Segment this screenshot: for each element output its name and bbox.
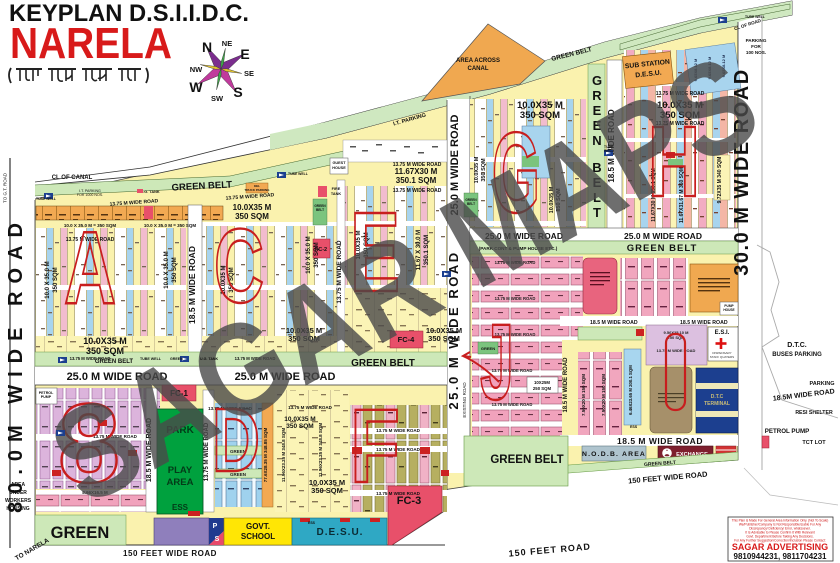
- svg-text:E: E: [240, 46, 249, 62]
- svg-text:FC-3: FC-3: [397, 495, 421, 507]
- svg-text:350 SQM: 350 SQM: [172, 257, 178, 282]
- svg-text:FOR 1000 NOS.: FOR 1000 NOS.: [77, 193, 103, 197]
- svg-text:CL OF CANAL: CL OF CANAL: [52, 175, 93, 181]
- svg-text:RESI SHELTER: RESI SHELTER: [795, 410, 833, 416]
- svg-text:U.G. TANK: U.G. TANK: [200, 357, 219, 361]
- svg-text:13.75 M WIDE ROAD: 13.75 M WIDE ROAD: [393, 162, 442, 168]
- svg-text:10.0 X 35.0 M: 10.0 X 35.0 M: [164, 251, 170, 288]
- svg-text:TRUCK PARKING: TRUCK PARKING: [245, 188, 271, 192]
- svg-text:10.0 X 35.0 M: 10.0 X 35.0 M: [45, 261, 51, 298]
- svg-text:GREEN BELT: GREEN BELT: [490, 454, 563, 466]
- svg-text:FIRE: FIRE: [332, 187, 341, 191]
- svg-text:11.96X23.25 M 348.8 SQM: 11.96X23.25 M 348.8 SQM: [318, 423, 323, 478]
- svg-text:NARELA: NARELA: [10, 19, 172, 68]
- svg-text:UNDER: UNDER: [9, 490, 27, 496]
- svg-text:18.5 M WIDE ROAD: 18.5 M WIDE ROAD: [563, 357, 569, 413]
- svg-text:EXISTING ROAD: EXISTING ROAD: [462, 382, 467, 418]
- svg-text:HOUSE: HOUSE: [723, 308, 734, 312]
- svg-text:7.50X20 M 150 SQM: 7.50X20 M 150 SQM: [601, 374, 606, 416]
- svg-text:13.75 M WIDE ROAD: 13.75 M WIDE ROAD: [657, 348, 696, 353]
- svg-text:250 SQM: 250 SQM: [533, 386, 552, 391]
- svg-text:ESS: ESS: [308, 521, 316, 525]
- svg-text:S: S: [233, 84, 242, 100]
- svg-text:HOUSE: HOUSE: [332, 166, 346, 170]
- svg-text:AREA: AREA: [11, 482, 26, 488]
- svg-text:S: S: [215, 536, 220, 543]
- svg-text:FOR: FOR: [751, 44, 761, 49]
- svg-text:TUBE WELL: TUBE WELL: [36, 197, 56, 201]
- svg-text:6.46X23.65 M 200.1 SQM: 6.46X23.65 M 200.1 SQM: [628, 365, 633, 415]
- svg-text:SAGAR ADVERTISING: SAGAR ADVERTISING: [732, 542, 828, 552]
- svg-text:150 FEET WIDE ROAD: 150 FEET WIDE ROAD: [123, 549, 217, 558]
- svg-text:NE: NE: [222, 39, 232, 48]
- svg-text:TUBE WELL: TUBE WELL: [288, 172, 308, 176]
- svg-text:P: P: [213, 523, 218, 530]
- svg-text:GREEN BELT: GREEN BELT: [627, 243, 698, 254]
- svg-text:N.O.D.B. AREA: N.O.D.B. AREA: [582, 451, 646, 458]
- svg-text:A: A: [64, 210, 116, 325]
- svg-text:SCHOOL: SCHOOL: [241, 532, 275, 541]
- svg-text:STAFF QUATERS: STAFF QUATERS: [710, 355, 734, 359]
- svg-text:TCT LOT: TCT LOT: [802, 440, 826, 446]
- svg-text:PETROL PUMP: PETROL PUMP: [765, 428, 810, 435]
- svg-text:WELL: WELL: [604, 149, 614, 153]
- svg-text:N: N: [202, 39, 212, 55]
- svg-text:350 SQM: 350 SQM: [53, 267, 59, 292]
- svg-text:100 NOS.: 100 NOS.: [746, 50, 766, 55]
- svg-text:ESS: ESS: [630, 425, 638, 429]
- svg-text:7.50X20 M 150 SQM: 7.50X20 M 150 SQM: [581, 374, 586, 416]
- svg-text:SW: SW: [211, 94, 224, 103]
- svg-text:F: F: [350, 388, 400, 505]
- svg-text:GUEST: GUEST: [332, 161, 346, 165]
- svg-text:E.S.I.: E.S.I.: [715, 330, 730, 336]
- svg-text:NW: NW: [190, 65, 203, 74]
- svg-text:BELT: BELT: [316, 208, 324, 212]
- svg-text:U.G. TANK: U.G. TANK: [140, 190, 159, 194]
- svg-text:AREA ACROSS: AREA ACROSS: [456, 58, 500, 64]
- svg-text:10X25M: 10X25M: [534, 380, 550, 385]
- svg-text:TO G.T. ROAD: TO G.T. ROAD: [3, 172, 8, 203]
- svg-text:WORKERS: WORKERS: [5, 498, 32, 504]
- svg-text:18.5 M WIDE ROAD: 18.5 M WIDE ROAD: [617, 436, 703, 446]
- svg-text:TUBE WELL: TUBE WELL: [745, 15, 765, 19]
- svg-text:CANAL: CANAL: [468, 66, 489, 72]
- svg-text:GREEN: GREEN: [170, 357, 183, 361]
- svg-text:D.E.S.U.: D.E.S.U.: [317, 527, 364, 538]
- svg-text:HOUSING: HOUSING: [6, 506, 29, 512]
- svg-text:TERMINAL: TERMINAL: [704, 401, 730, 407]
- svg-text:80.0M WIDE ROAD: 80.0M WIDE ROAD: [5, 215, 27, 513]
- svg-text:ESS: ESS: [172, 503, 189, 512]
- svg-text:TANK: TANK: [331, 192, 342, 196]
- svg-text:SE: SE: [244, 69, 254, 78]
- svg-text:GOVT.: GOVT.: [246, 522, 270, 531]
- svg-text:10.0 X 35.0 M = 350 SQM: 10.0 X 35.0 M = 350 SQM: [144, 223, 196, 228]
- svg-text:BUSES PARKING: BUSES PARKING: [772, 352, 822, 358]
- svg-text:9810944231, 9811704231: 9810944231, 9811704231: [734, 552, 828, 561]
- svg-text:PARKING: PARKING: [746, 38, 767, 43]
- svg-text:D.T.C: D.T.C: [711, 394, 724, 400]
- svg-text:350 SQM: 350 SQM: [311, 486, 343, 495]
- svg-text:PARKING: PARKING: [810, 381, 835, 387]
- svg-text:18.5 M WIDE ROAD: 18.5 M WIDE ROAD: [590, 320, 638, 326]
- svg-text:J: J: [480, 301, 514, 422]
- svg-text:11.96X23.25 M 348.8 SQM: 11.96X23.25 M 348.8 SQM: [281, 428, 286, 483]
- svg-text:TUBE WELL: TUBE WELL: [140, 357, 162, 361]
- svg-text:W: W: [189, 79, 203, 95]
- svg-text:11.67X30 M: 11.67X30 M: [395, 167, 438, 176]
- svg-text:D.T.C.: D.T.C.: [787, 342, 807, 349]
- svg-text:10.0X35 M: 10.0X35 M: [83, 336, 127, 346]
